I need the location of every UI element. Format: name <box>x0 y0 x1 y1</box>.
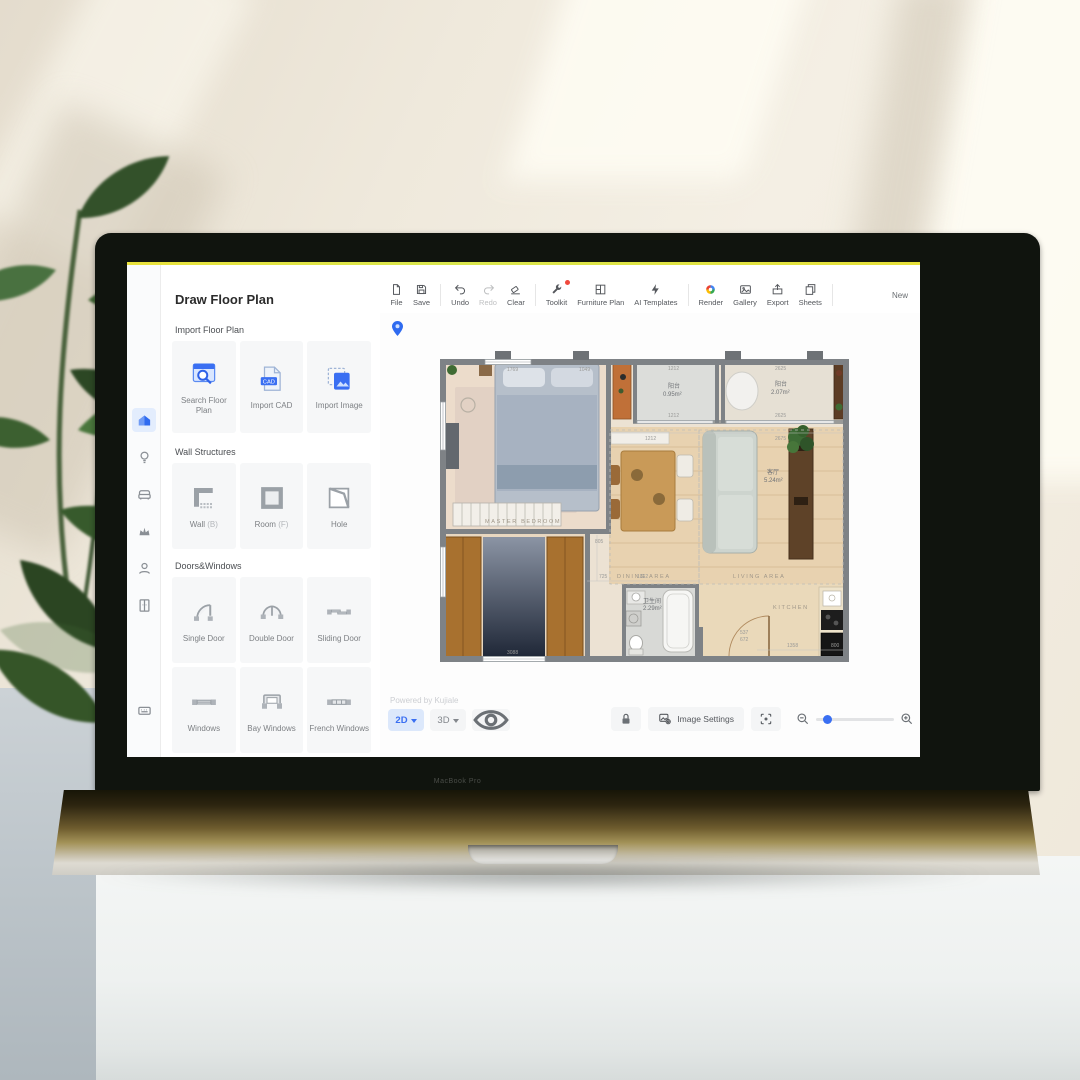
card-label: Wall (B) <box>188 520 220 530</box>
svg-text:1362: 1362 <box>637 574 648 580</box>
zoom-slider-knob[interactable] <box>823 715 832 724</box>
toolbar-separator <box>535 284 536 306</box>
render-icon <box>704 283 717 296</box>
canvas-controls: Image Settings <box>611 707 914 731</box>
laptop-brand-text: MacBook Pro <box>95 778 820 785</box>
powered-by-label: Powered by Kujiale <box>390 696 458 705</box>
export-button[interactable]: Export <box>767 283 789 307</box>
save-icon <box>415 283 428 296</box>
render-button[interactable]: Render <box>699 283 724 307</box>
search-floor-plan-card[interactable]: Search Floor Plan <box>172 341 236 433</box>
section-walls-title: Wall Structures <box>175 447 236 457</box>
svg-text:1212: 1212 <box>645 436 656 442</box>
furniture-plan-icon <box>594 283 607 296</box>
toolkit-button[interactable]: Toolkit <box>546 283 567 307</box>
keyboard-icon <box>137 703 152 718</box>
zoom-slider[interactable] <box>816 718 894 721</box>
card-label: Import CAD <box>249 401 295 411</box>
crown-icon <box>137 524 152 539</box>
card-label: Windows <box>186 724 222 734</box>
toolbar-separator <box>688 284 689 306</box>
gallery-button[interactable]: Gallery <box>733 283 757 307</box>
draw-floorplan-panel: Draw Floor Plan Import Floor Plan Search… <box>161 265 380 757</box>
cabinet-icon <box>137 598 152 613</box>
card-label: Room (F) <box>253 520 291 530</box>
svg-text:1212: 1212 <box>668 413 679 419</box>
double-door-card[interactable]: Double Door <box>240 577 304 663</box>
svg-text:MASTER BEDROOM: MASTER BEDROOM <box>485 519 561 525</box>
map-pin-icon[interactable] <box>392 321 403 336</box>
home-icon <box>137 413 152 428</box>
import-cards-row: Search Floor Plan CAD Import CAD Import … <box>172 341 371 433</box>
svg-text:3088: 3088 <box>507 650 518 656</box>
panel-title: Draw Floor Plan <box>175 292 274 307</box>
view-switcher: 2D 3D <box>388 709 510 731</box>
svg-text:1212: 1212 <box>668 366 679 372</box>
top-toolbar: File Save Undo Redo Clear <box>380 277 920 314</box>
rail-account-button[interactable] <box>132 556 156 580</box>
bay-windows-icon <box>257 687 287 717</box>
svg-text:2.07m²: 2.07m² <box>771 390 790 396</box>
card-label: French Windows <box>307 724 371 734</box>
clear-button[interactable]: Clear <box>507 283 525 307</box>
svg-text:2625: 2625 <box>775 413 786 419</box>
svg-text:客厅: 客厅 <box>767 468 779 476</box>
sliding-door-icon <box>324 597 354 627</box>
bulb-icon <box>137 450 152 465</box>
floorplan-canvas[interactable]: MASTER BEDROOM DINING AREA LIVING AREA K… <box>380 313 920 757</box>
svg-text:0.95m²: 0.95m² <box>663 392 682 398</box>
card-label: Hole <box>329 520 349 530</box>
zoom-out-icon[interactable] <box>796 712 810 726</box>
rail-vip-button[interactable] <box>132 519 156 543</box>
windows-card[interactable]: Windows <box>172 667 236 753</box>
sheets-button[interactable]: Sheets <box>799 283 822 307</box>
undo-icon <box>454 283 467 296</box>
zoom-controls <box>796 712 914 726</box>
svg-text:5.24m²: 5.24m² <box>764 478 783 484</box>
fit-view-button[interactable] <box>751 707 781 731</box>
svg-text:阳台: 阳台 <box>668 382 680 390</box>
card-label: Single Door <box>181 634 227 644</box>
wall-tool-card[interactable]: Wall (B) <box>172 463 236 549</box>
doors-cards-row-1: Single Door Double Door Sliding Door <box>172 577 371 663</box>
svg-text:2675: 2675 <box>775 436 786 442</box>
desk-shadow-left <box>0 688 96 1080</box>
section-doors-title: Doors&Windows <box>175 561 242 571</box>
section-import-title: Import Floor Plan <box>175 325 244 335</box>
eraser-icon <box>509 283 522 296</box>
card-label: Bay Windows <box>245 724 297 734</box>
undo-button[interactable]: Undo <box>451 283 469 307</box>
wall-cards-row: Wall (B) Room (F) Hole <box>172 463 371 549</box>
svg-text:800: 800 <box>831 643 840 649</box>
view-3d-button[interactable]: 3D <box>430 709 466 731</box>
export-icon <box>771 283 784 296</box>
redo-icon <box>482 283 495 296</box>
svg-text:CAD: CAD <box>262 379 274 385</box>
svg-text:2.29m²: 2.29m² <box>643 606 662 612</box>
double-door-icon <box>257 597 287 627</box>
svg-text:725: 725 <box>599 574 608 580</box>
image-settings-icon <box>658 712 672 726</box>
view-2d-button[interactable]: 2D <box>388 709 424 731</box>
sheets-icon <box>804 283 817 296</box>
photo-scene: MacBook Pro <box>0 0 1080 1080</box>
single-door-icon <box>189 597 219 627</box>
image-settings-button[interactable]: Image Settings <box>648 707 744 731</box>
hole-tool-card[interactable]: Hole <box>307 463 371 549</box>
save-button[interactable]: Save <box>413 283 430 307</box>
zoom-in-icon[interactable] <box>900 712 914 726</box>
wall-icon <box>189 483 219 513</box>
svg-text:1358: 1358 <box>787 643 798 649</box>
visibility-button[interactable] <box>472 709 510 731</box>
svg-text:672: 672 <box>740 637 749 643</box>
svg-text:KITCHEN: KITCHEN <box>773 605 809 611</box>
sliding-door-card[interactable]: Sliding Door <box>307 577 371 663</box>
workspace: File Save Undo Redo Clear <box>380 265 920 757</box>
svg-text:2625: 2625 <box>775 366 786 372</box>
caret-down-icon <box>411 719 417 723</box>
import-image-card[interactable]: Import Image <box>307 341 371 433</box>
eye-icon <box>472 701 510 739</box>
import-cad-icon: CAD <box>257 364 287 394</box>
french-windows-icon <box>324 687 354 717</box>
toolkit-notification-badge <box>565 280 570 285</box>
svg-text:卫生间: 卫生间 <box>643 597 661 605</box>
wrench-icon <box>550 283 563 296</box>
import-image-icon <box>324 364 354 394</box>
hole-icon <box>324 483 354 513</box>
svg-text:805: 805 <box>595 539 604 545</box>
laptop-shadow <box>90 858 1000 892</box>
french-windows-card[interactable]: French Windows <box>307 667 371 753</box>
rail-floorplan-button[interactable] <box>132 408 156 432</box>
import-cad-card[interactable]: CAD Import CAD <box>240 341 304 433</box>
doors-cards-row-2: Windows Bay Windows French Windows <box>172 667 371 753</box>
search-floor-plan-icon <box>189 359 219 389</box>
new-button[interactable]: New <box>892 291 910 300</box>
card-label: Search Floor Plan <box>172 396 236 416</box>
redo-button[interactable]: Redo <box>479 283 497 307</box>
file-button[interactable]: File <box>390 283 403 307</box>
floor-plan-drawing[interactable]: MASTER BEDROOM DINING AREA LIVING AREA K… <box>437 347 857 677</box>
gallery-icon <box>739 283 752 296</box>
bay-windows-card[interactable]: Bay Windows <box>240 667 304 753</box>
lock-icon <box>619 712 633 726</box>
toolbar-separator <box>440 284 441 306</box>
card-label: Double Door <box>247 634 296 644</box>
ai-icon <box>649 283 662 296</box>
svg-text:1049: 1049 <box>579 367 590 373</box>
lock-button[interactable] <box>611 707 641 731</box>
single-door-card[interactable]: Single Door <box>172 577 236 663</box>
rail-furniture-button[interactable] <box>132 482 156 506</box>
ai-templates-button[interactable]: AI Templates <box>634 283 677 307</box>
svg-text:LIVING AREA: LIVING AREA <box>733 574 785 580</box>
focus-icon <box>759 712 773 726</box>
furniture-plan-button[interactable]: Furniture Plan <box>577 283 624 307</box>
rail-storage-button[interactable] <box>132 593 156 617</box>
left-icon-rail <box>127 265 161 757</box>
room-icon <box>257 483 287 513</box>
svg-text:阳台: 阳台 <box>775 380 787 388</box>
svg-text:1769: 1769 <box>507 367 518 373</box>
user-icon <box>137 561 152 576</box>
rail-ideas-button[interactable] <box>132 445 156 469</box>
file-icon <box>390 283 403 296</box>
windows-icon <box>189 687 219 717</box>
caret-down-icon <box>453 719 459 723</box>
toolbar-separator <box>832 284 833 306</box>
rail-shortcuts-button[interactable] <box>132 698 156 722</box>
room-tool-card[interactable]: Room (F) <box>240 463 304 549</box>
svg-text:537: 537 <box>740 630 749 636</box>
app-window: Draw Floor Plan Import Floor Plan Search… <box>127 262 920 757</box>
card-label: Sliding Door <box>315 634 363 644</box>
sofa-icon <box>137 487 152 502</box>
card-label: Import Image <box>314 401 365 411</box>
